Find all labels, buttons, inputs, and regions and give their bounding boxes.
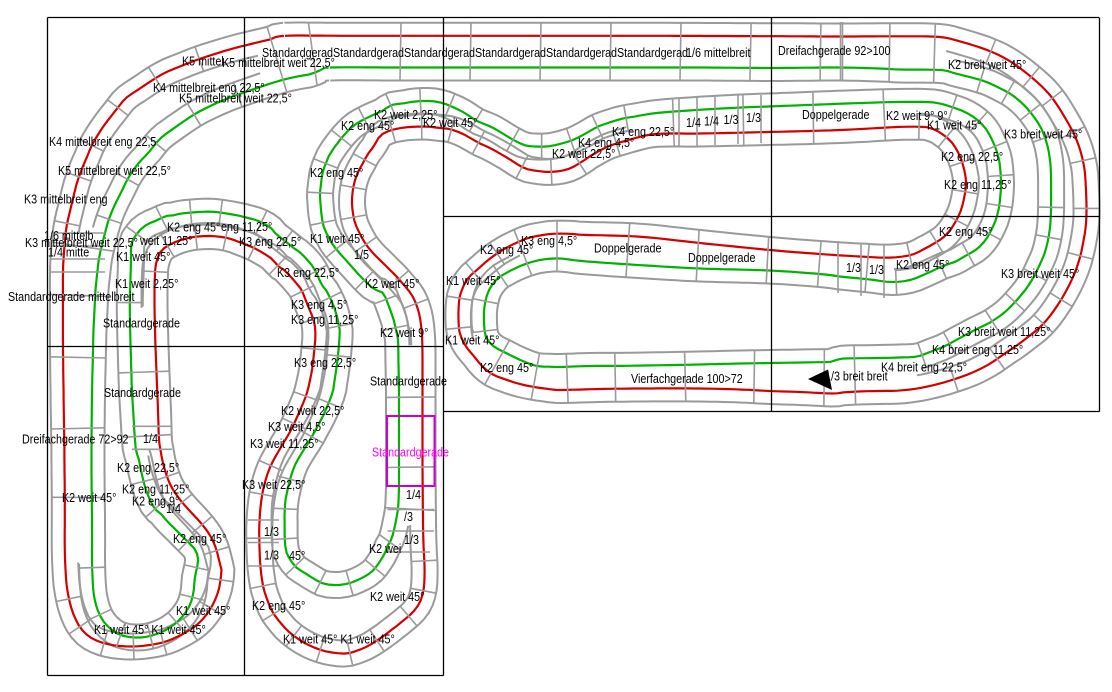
svg-text:K1 weit 45°: K1 weit 45° [116, 250, 170, 264]
svg-text:K1 weit 45°: K1 weit 45° [176, 604, 230, 618]
svg-text:K5 mittelbreit weit 22,5°: K5 mittelbreit weit 22,5° [222, 56, 335, 70]
svg-text:Standardgerad: Standardgerad [404, 46, 475, 60]
svg-text:K3 eng 22,5°: K3 eng 22,5° [294, 356, 356, 370]
svg-text:K3 eng 22,5°: K3 eng 22,5° [277, 266, 339, 280]
svg-text:K2 eng 22,5°: K2 eng 22,5° [117, 461, 179, 475]
svg-text:1/4: 1/4 [686, 116, 701, 130]
svg-text:1/3 breit breit: 1/3 breit breit [825, 370, 888, 384]
svg-text:1/4: 1/4 [166, 502, 181, 516]
svg-text:Standardgerad: Standardgerad [546, 46, 617, 60]
svg-text:Standardgerade: Standardgerade [104, 386, 181, 400]
svg-text:Doppelgerade: Doppelgerade [688, 251, 755, 265]
svg-text:K1 weit 45° K1 weit 45°: K1 weit 45° K1 weit 45° [94, 623, 206, 637]
svg-text:Vierfachgerade 100>72: Vierfachgerade 100>72 [631, 372, 743, 386]
svg-text:K2 eng 45°: K2 eng 45° [252, 599, 305, 613]
svg-text:K3 breit weit 45°: K3 breit weit 45° [1001, 267, 1079, 281]
svg-text:Standardgerade mittelbreit: Standardgerade mittelbreit [8, 290, 135, 304]
svg-text:K2 eng 11,25°: K2 eng 11,25° [944, 178, 1011, 192]
svg-text:1/3: 1/3 [869, 263, 884, 277]
svg-text:1/3: 1/3 [264, 525, 279, 539]
svg-text:K5 mittelbreit weit 22,5°: K5 mittelbreit weit 22,5° [179, 92, 292, 106]
svg-text:/3: /3 [404, 510, 413, 524]
svg-text:K2 eng 22,5°: K2 eng 22,5° [941, 150, 1003, 164]
svg-text:Standardgerade: Standardgerade [370, 375, 447, 389]
svg-text:K2 weit 22,5°: K2 weit 22,5° [281, 404, 344, 418]
svg-text:K3 breit weit 11,25°: K3 breit weit 11,25° [958, 325, 1050, 339]
svg-text:Standardgerad: Standardgerad [333, 46, 404, 60]
svg-text:Doppelgerade: Doppelgerade [802, 108, 869, 122]
svg-text:K1 weit 45°: K1 weit 45° [445, 334, 499, 348]
svg-text:K1 weit 45° K1 weit 45°: K1 weit 45° K1 weit 45° [283, 633, 395, 647]
svg-text:K2 eng 45°: K2 eng 45° [480, 361, 533, 375]
svg-text:K1 weit 45°: K1 weit 45° [927, 119, 981, 133]
svg-text:1/5: 1/5 [354, 248, 369, 262]
svg-text:eng 11,25°: eng 11,25° [221, 220, 272, 234]
svg-text:K2 eng 45°: K2 eng 45° [896, 258, 949, 272]
svg-text:K4 breit eng 22,5°: K4 breit eng 22,5° [881, 361, 967, 375]
svg-text:K2 weit 45°: K2 weit 45° [365, 277, 419, 291]
svg-text:45°: 45° [289, 549, 305, 563]
svg-text:K3 eng 4,5°: K3 eng 4,5° [291, 298, 347, 312]
svg-text:K4 breit eng 11,25°: K4 breit eng 11,25° [932, 343, 1023, 357]
svg-text:1/4: 1/4 [704, 115, 719, 129]
svg-text:K3 mittelbreit eng: K3 mittelbreit eng [24, 193, 108, 207]
svg-text:K2 eng 45°: K2 eng 45° [167, 221, 220, 235]
svg-text:K4 mittelbreit eng 22,5: K4 mittelbreit eng 22,5 [49, 135, 156, 149]
svg-text:Dreifachgerade 72>92: Dreifachgerade 72>92 [22, 433, 129, 447]
svg-text:K3 weit 11,25°: K3 weit 11,25° [250, 437, 319, 451]
svg-text:K2 eng 45°: K2 eng 45° [939, 225, 992, 239]
svg-text:1/3: 1/3 [846, 261, 861, 275]
svg-text:Doppelgerade: Doppelgerade [594, 242, 661, 256]
svg-text:K3 breit weit 45°: K3 breit weit 45° [1004, 128, 1082, 142]
svg-text:K2 weit 45°: K2 weit 45° [423, 116, 477, 130]
svg-text:K3 eng 4,5°: K3 eng 4,5° [521, 234, 577, 248]
svg-text:Dreifachgerade 92>100: Dreifachgerade 92>100 [778, 44, 891, 58]
svg-text:1/4 mitte: 1/4 mitte [48, 246, 89, 260]
svg-text:1/4: 1/4 [143, 432, 158, 446]
svg-text:Standardgerad: Standardgerad [617, 46, 688, 60]
svg-text:K2 weit 9°: K2 weit 9° [380, 326, 428, 340]
svg-text:K2 eng 45°: K2 eng 45° [341, 119, 394, 133]
svg-text:1/6 mittelbreit: 1/6 mittelbreit [686, 46, 751, 60]
svg-text:K2 weit 45°: K2 weit 45° [370, 590, 424, 604]
svg-text:Standardgerade: Standardgerade [103, 317, 180, 331]
svg-text:1/3: 1/3 [746, 111, 761, 125]
svg-text:K3 eng 22,5°: K3 eng 22,5° [239, 235, 301, 249]
svg-text:K2 weit 45°: K2 weit 45° [62, 491, 116, 505]
svg-text:K1 weit 45°: K1 weit 45° [310, 232, 364, 246]
svg-text:K2 eng 45°: K2 eng 45° [173, 532, 226, 546]
svg-text:1/3: 1/3 [264, 549, 279, 563]
svg-text:1/4: 1/4 [406, 488, 421, 502]
svg-text:K2 wei: K2 wei [369, 542, 401, 556]
svg-text:weit 11,25°: weit 11,25° [139, 234, 192, 248]
svg-text:K5 mittelbreit weit 22,5°: K5 mittelbreit weit 22,5° [58, 164, 171, 178]
svg-text:K3 eng 11,25°: K3 eng 11,25° [291, 313, 358, 327]
svg-text:K2 breit weit 45°: K2 breit weit 45° [948, 58, 1026, 72]
svg-text:Standardgerad: Standardgerad [475, 46, 546, 60]
svg-text:K4 eng 22,5°: K4 eng 22,5° [612, 125, 674, 139]
svg-text:K5 mittel: K5 mittel [182, 55, 224, 69]
svg-text:Standardgerade: Standardgerade [372, 446, 449, 460]
svg-text:1/3: 1/3 [724, 113, 739, 127]
svg-text:1/3: 1/3 [404, 533, 419, 547]
svg-text:K2 eng 45°: K2 eng 45° [310, 166, 363, 180]
svg-text:K3 weit 22,5°: K3 weit 22,5° [242, 478, 305, 492]
svg-text:K3 weit 4,5°: K3 weit 4,5° [268, 420, 325, 434]
svg-text:K1 weit 2,25°: K1 weit 2,25° [115, 277, 178, 291]
svg-text:K1 weit 45°: K1 weit 45° [446, 274, 500, 288]
